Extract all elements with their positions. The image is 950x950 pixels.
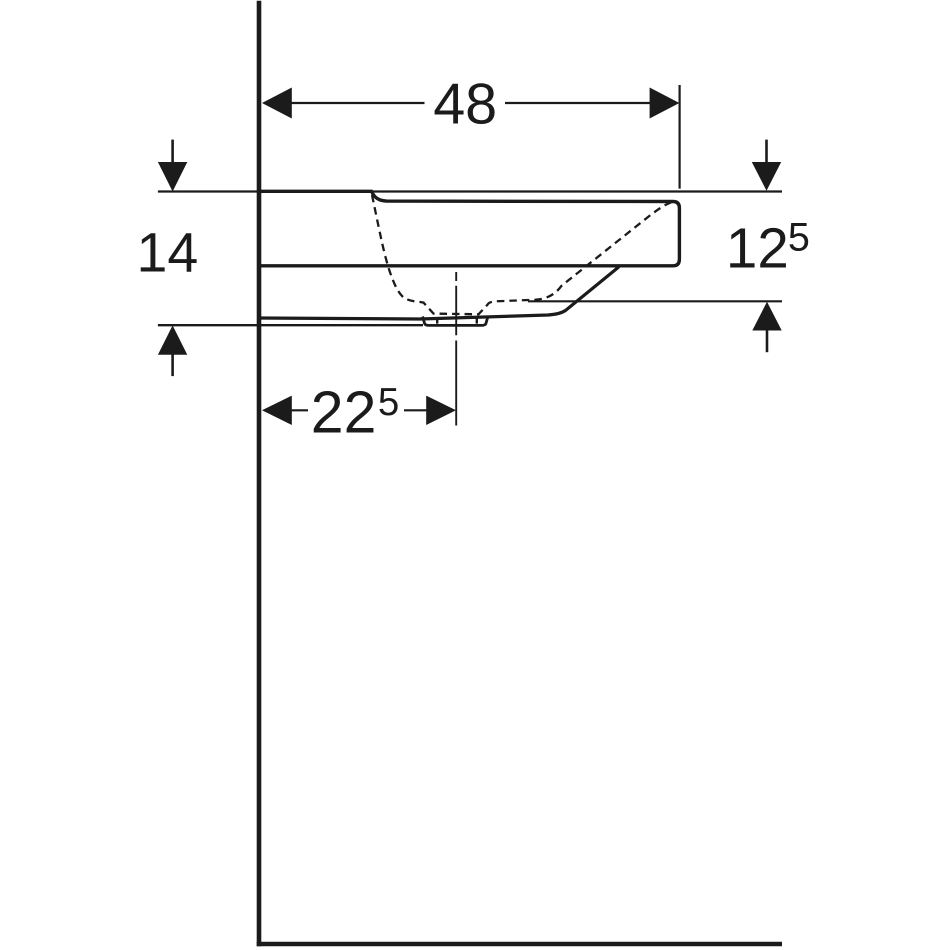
svg-text:12: 12	[726, 217, 789, 280]
svg-text:22: 22	[311, 380, 377, 446]
svg-text:48: 48	[433, 73, 497, 137]
svg-text:14: 14	[137, 222, 199, 284]
svg-text:5: 5	[788, 216, 810, 260]
svg-text:5: 5	[378, 381, 399, 424]
